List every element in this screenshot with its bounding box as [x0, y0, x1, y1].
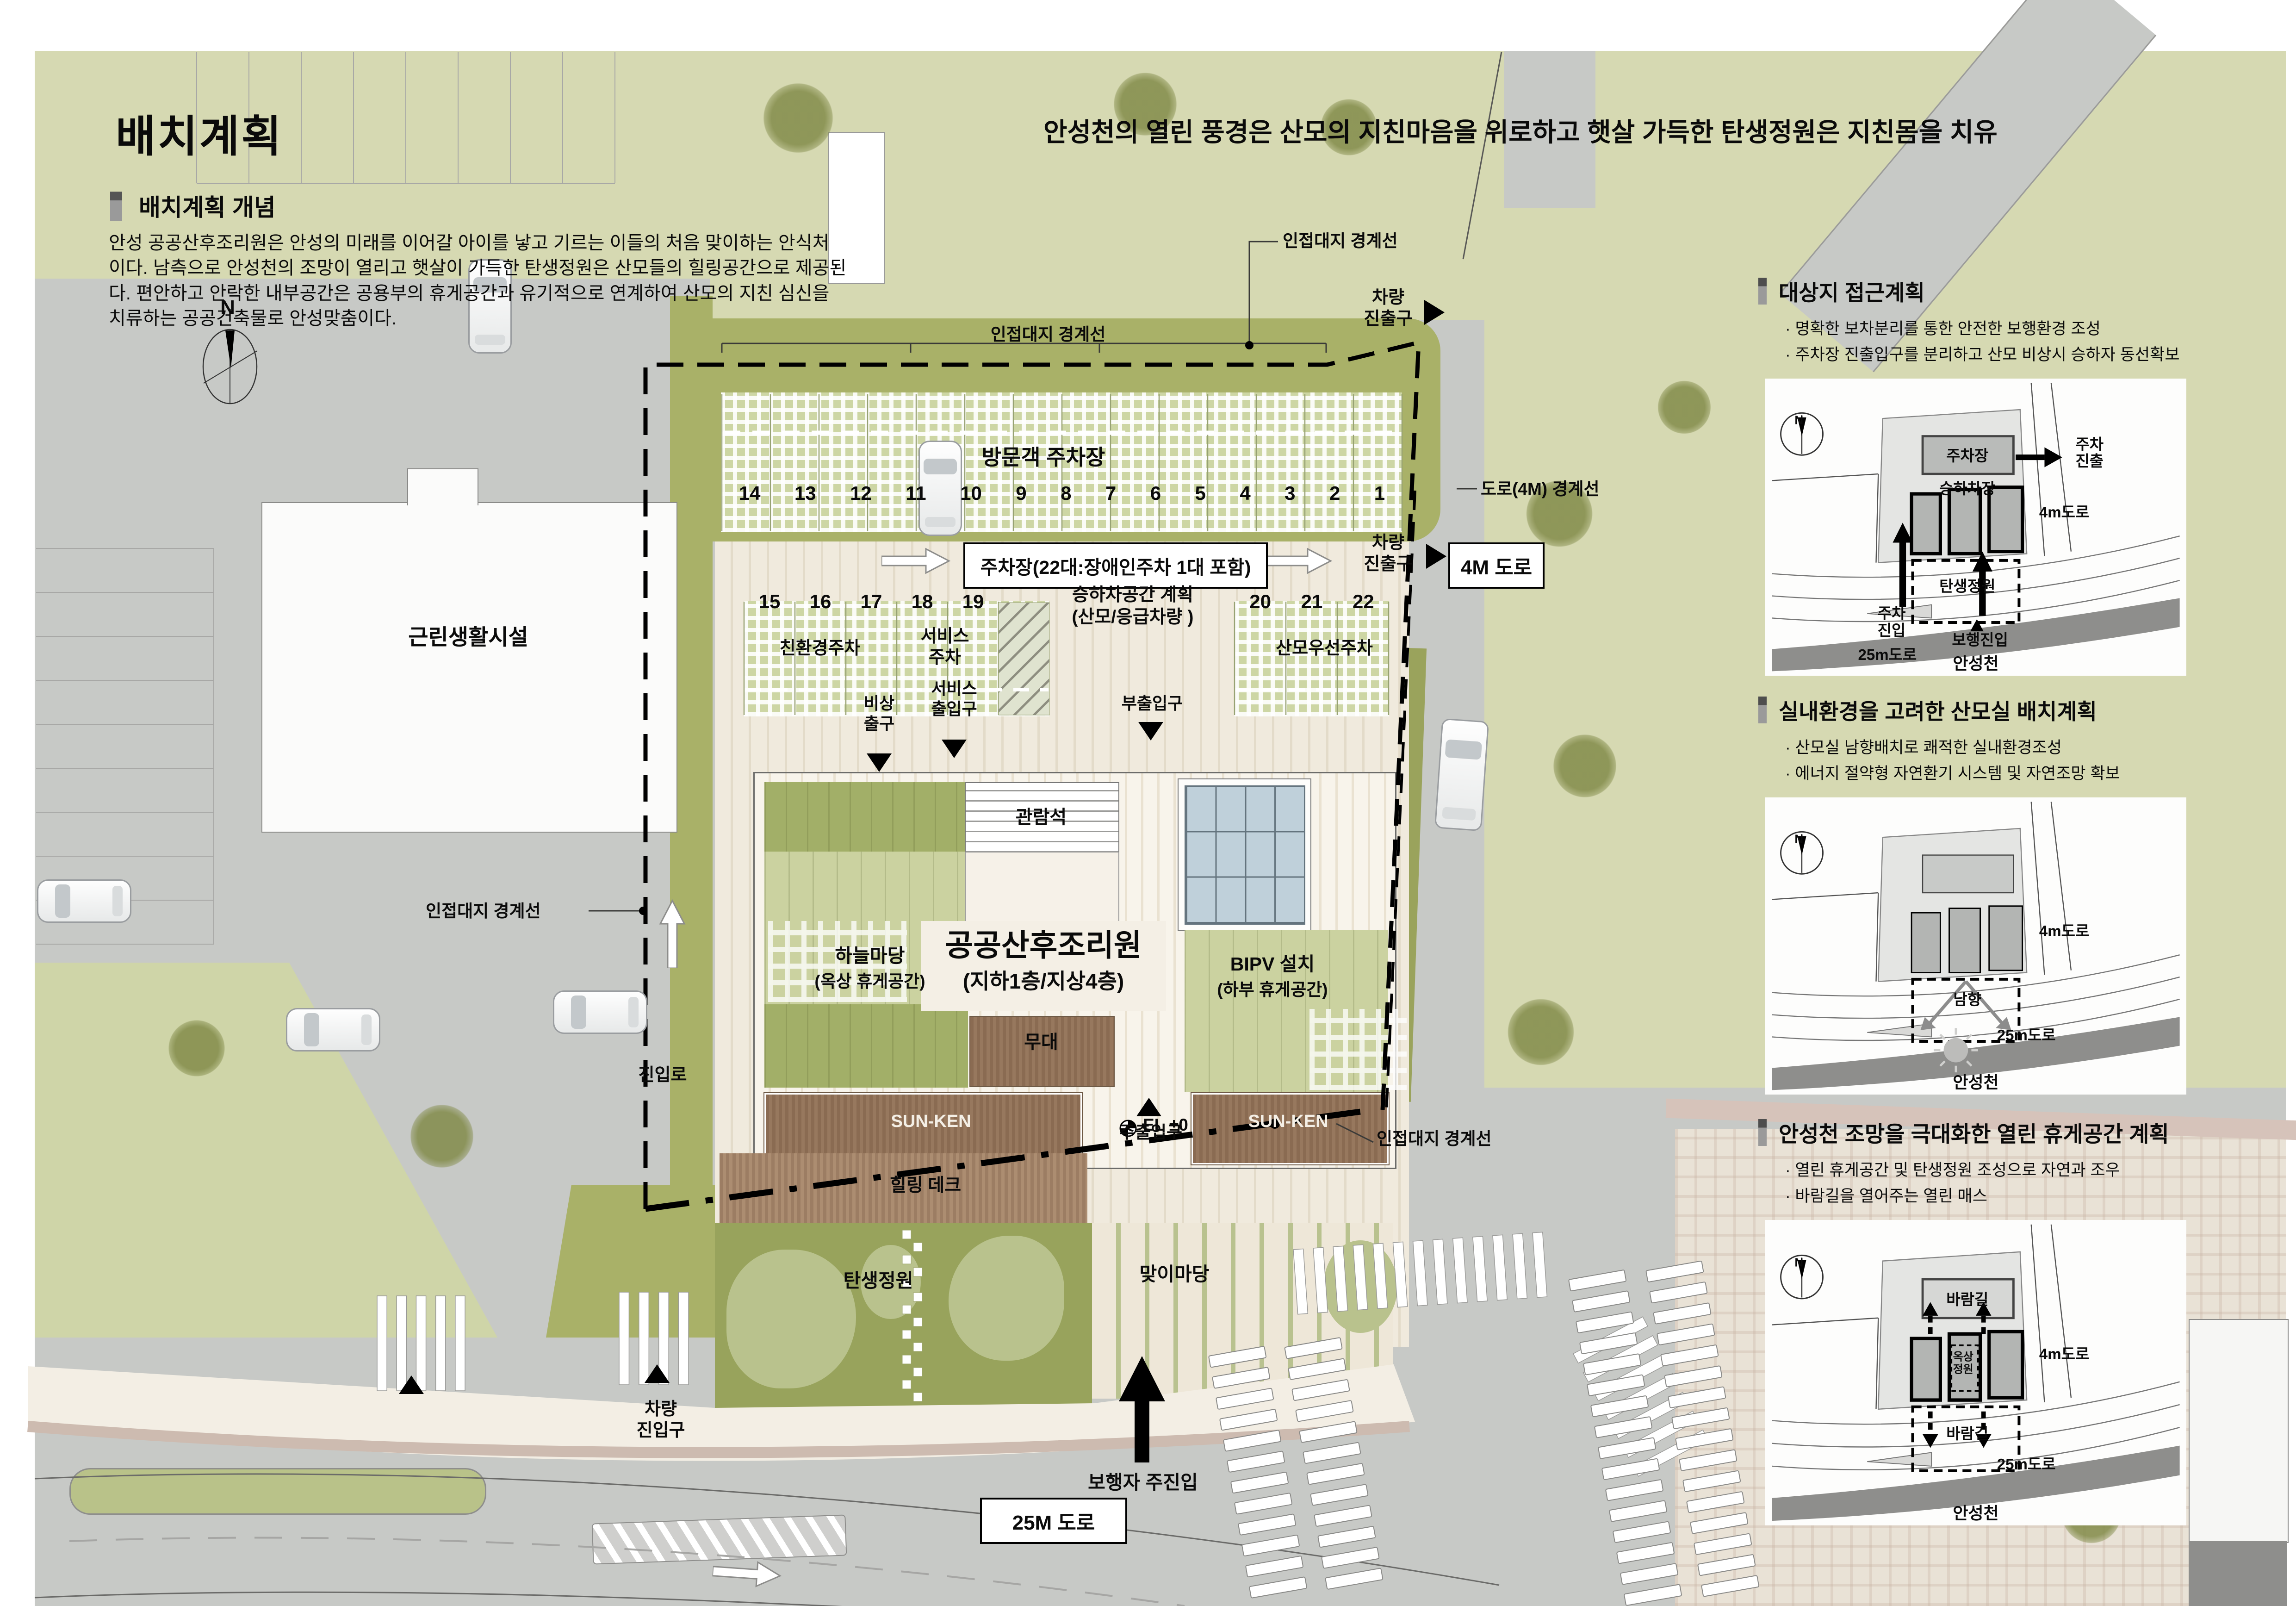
concept-marker-icon	[110, 192, 122, 221]
panel-bullet: · 산모실 남향배치로 쾌적한 실내환경조성	[1785, 734, 2062, 758]
mini-dropzone-label: 승하차장	[1939, 480, 1995, 497]
panel-title: 안성천 조망을 극대화한 열린 휴게공간 계획	[1779, 1116, 2169, 1148]
pedestrian-entry-label: 보행자 주진입	[1088, 1471, 1198, 1494]
panel-marker-icon	[1758, 1119, 1767, 1146]
mini-map	[1765, 797, 2186, 1095]
building-name-label: 공공산후조리원	[945, 927, 1142, 964]
concept-heading: 배치계획 개념	[139, 193, 276, 222]
boundary-label-left: 인접대지 경계선	[426, 901, 541, 921]
panel-bullet: · 명확한 보차분리를 통한 안전한 보행환경 조성	[1785, 316, 2101, 339]
mini-wind-top-label: 바람길	[1946, 1291, 1988, 1307]
boundary-label-top-right: 인접대지 경계선	[1283, 230, 1398, 251]
stall-number: 3	[1285, 482, 1295, 504]
stall-number: 10	[960, 482, 982, 504]
sub-entrance-arrow-icon	[1138, 722, 1163, 740]
stall-number: 22	[1353, 591, 1374, 613]
dropoff-plan-label: 승하차공간 계획 (산모/응급차량 )	[1072, 584, 1194, 628]
mini-wind-bottom-label: 바람길	[1946, 1425, 1988, 1442]
neighborhood-label: 근린생활시설	[408, 624, 528, 650]
panel-title: 대상지 접근계획	[1779, 275, 1925, 307]
sunken-left-label: SUN-KEN	[891, 1111, 971, 1132]
main-entrance-arrow-icon	[1136, 1098, 1161, 1116]
stall-number: 13	[794, 482, 816, 504]
panel-diagram: N 바람길 옥상 정원 4m도로 바람길 25m도로 안성천	[1765, 1220, 2186, 1525]
panel-bullet: · 열린 휴게공간 및 탄생정원 조성으로 자연과 조우	[1785, 1157, 2120, 1181]
bipv-label: BIPV 설치	[1230, 952, 1315, 976]
stall-number: 1	[1374, 482, 1385, 504]
direction-arrow-icon	[1263, 546, 1333, 576]
stall-number: 8	[1061, 482, 1071, 504]
stall-number: 15	[759, 591, 781, 613]
car-icon	[286, 1008, 380, 1052]
sub-entrance-label: 부출입구	[1122, 693, 1183, 714]
parking-note-label: 주차장(22대:장애인주차 1대 포함)	[980, 552, 1251, 579]
stall-number: 11	[906, 482, 926, 504]
panel-room-layout-plan: 실내환경을 고려한 산모실 배치계획 · 산모실 남향배치로 쾌적한 실내환경조…	[1758, 697, 2290, 1104]
access-road-label: 진입로	[639, 1064, 687, 1086]
bottom-margin	[0, 1606, 2296, 1624]
stall-number: 20	[1249, 591, 1271, 613]
mini-road4m-label: 4m도로	[2039, 504, 2089, 521]
stall-number: 19	[962, 591, 984, 613]
stall-numbers-row2: 1516171819	[744, 591, 999, 613]
stall-numbers-row1: 1413121110987654321	[722, 482, 1402, 504]
bipv-sub-label: (하부 휴게공간)	[1217, 979, 1328, 1000]
panel-marker-icon	[1758, 697, 1767, 723]
road-25m-box: 25M 도로	[980, 1498, 1127, 1544]
sky-yard-label: 하늘마당	[835, 944, 905, 967]
road-25m-label: 25M 도로	[1012, 1506, 1095, 1536]
parking-note-box: 주차장(22대:장애인주차 1대 포함)	[963, 542, 1268, 589]
panel-bullet: · 에너지 절약형 자연환기 시스템 및 자연조망 확보	[1785, 760, 2120, 784]
service-entrance-label: 서비스 출입구	[931, 678, 977, 719]
eco-parking-label: 친환경주차	[780, 638, 861, 659]
panel-bullet: · 주차장 진출입구를 분리하고 산모 비상시 승하자 동선확보	[1785, 342, 2180, 365]
stall-number: 18	[912, 591, 933, 613]
emergency-exit-arrow-icon	[867, 753, 892, 772]
stall-number: 7	[1105, 482, 1116, 504]
stall-number: 17	[861, 591, 882, 613]
mini-river-label: 안성천	[1953, 1504, 1998, 1523]
panel-diagram: N 4m도로 남향 25m도로 안성천	[1765, 797, 2186, 1095]
mini-parking-label: 주차장	[1946, 448, 1988, 464]
mini-river-label: 안성천	[1953, 655, 1998, 673]
mini-map	[1765, 1220, 2186, 1525]
stall-number: 12	[850, 482, 872, 504]
direction-arrow-icon	[881, 546, 951, 576]
concept-body: 안성 공공산후조리원은 안성의 미래를 이어갈 아이를 낳고 기르는 이들의 처…	[109, 230, 849, 331]
stall-number: 9	[1016, 482, 1026, 504]
visitor-parking-label: 방문객 주차장	[982, 444, 1105, 470]
mini-river-label: 안성천	[1953, 1074, 1998, 1092]
mother-parking-label: 산모우선주차	[1276, 638, 1373, 659]
stall-number: 16	[810, 591, 832, 613]
panel-bullet: · 바람길을 열어주는 열린 매스	[1785, 1183, 1987, 1207]
healing-deck-label: 힐링 데크	[890, 1175, 961, 1197]
grandstand-label: 관람석	[1016, 806, 1067, 829]
stall-number: 21	[1301, 591, 1323, 613]
mini-south-label: 남향	[1953, 991, 1981, 1008]
vehicle-entry-arrow-icon	[645, 1364, 670, 1383]
birth-garden-label: 탄생정원	[844, 1269, 913, 1292]
panel-diagram: N 주차장 주차 진출 승하차장 4m도로 탄생정원 주차 진입 보행진입 25…	[1765, 379, 2186, 676]
car-icon	[37, 879, 131, 923]
stage-label: 무대	[1024, 1031, 1058, 1054]
compass-label: N	[220, 295, 235, 320]
mini-road25m-label: 25m도로	[1997, 1027, 2056, 1043]
mini-parking-entry-label: 주차 진입	[1878, 605, 1906, 639]
panel-title: 실내환경을 고려한 산모실 배치계획	[1779, 694, 2097, 726]
stall-numbers-row3: 202122	[1235, 591, 1389, 613]
service-parking-label: 서비스 주차	[921, 626, 969, 669]
mini-compass-label: N	[1794, 833, 1803, 846]
boundary-label-bottom-right: 인접대지 경계선	[1377, 1128, 1492, 1149]
vehicle-exit-arrow-icon	[1426, 544, 1446, 569]
road-4m-box: 4M 도로	[1448, 542, 1545, 589]
van-icon	[1434, 718, 1489, 832]
building-floor-label: (지하1층/지상4층)	[963, 968, 1124, 994]
boundary-label-top: 인접대지 경계선	[991, 324, 1106, 345]
direction-arrow-icon	[712, 1556, 783, 1591]
mini-road4m-label: 4m도로	[2039, 1346, 2089, 1363]
stall-number: 2	[1329, 482, 1340, 504]
mini-parking-exit-label: 주차 진출	[2075, 436, 2104, 470]
stall-number: 4	[1240, 482, 1250, 504]
stall-number: 6	[1150, 482, 1161, 504]
direction-arrow-icon	[658, 899, 687, 968]
welcome-yard-label: 맞이마당	[1140, 1263, 1210, 1286]
stall-number: 14	[739, 482, 761, 504]
mini-compass-label: N	[1794, 1256, 1803, 1269]
service-entrance-arrow-icon	[942, 740, 967, 758]
car-icon	[553, 990, 647, 1034]
mini-road25m-label: 25m도로	[1997, 1456, 2056, 1473]
vehicle-entry-label: 차량 진입구	[637, 1399, 685, 1442]
stall-number: 5	[1195, 482, 1206, 504]
site-plan-board: 배치계획 안성천의 열린 풍경은 산모의 지친마음을 위로하고 햇살 가득한 탄…	[0, 0, 2296, 1624]
mini-road4m-label: 4m도로	[2039, 923, 2089, 940]
page-headline: 안성천의 열린 풍경은 산모의 지친마음을 위로하고 햇살 가득한 탄생정원은 …	[1043, 117, 1998, 148]
panel-access-plan: 대상지 접근계획 · 명확한 보차분리를 통한 안전한 보행환경 조성 · 주차…	[1758, 278, 2290, 685]
panel-open-rest-plan: 안성천 조망을 극대화한 열린 휴게공간 계획 · 열린 휴게공간 및 탄생정원…	[1758, 1119, 2290, 1536]
mini-roof-garden-label: 옥상 정원	[1953, 1351, 1973, 1376]
vehicle-exit-label-2: 차량 진출구	[1364, 532, 1413, 575]
emergency-exit-label: 비상 출구	[864, 693, 894, 734]
page-title: 배치계획	[116, 110, 283, 163]
sky-yard-sub-label: (옥상 휴게공간)	[814, 971, 925, 992]
vehicle-exit-label-1: 차량 진출구	[1364, 287, 1413, 330]
crosswalk-arrow-icon	[399, 1375, 424, 1394]
road-4m-label: 4M 도로	[1461, 551, 1532, 580]
sunken-right-label: SUN-KEN	[1248, 1111, 1328, 1132]
mini-ped-entry-label: 보행진입	[1952, 632, 2008, 648]
vehicle-exit-arrow-icon	[1424, 300, 1445, 325]
road-4m-boundary-label: 도로(4M) 경계선	[1481, 479, 1600, 499]
el-label: EL ±0	[1143, 1114, 1188, 1135]
mini-compass-label: N	[1794, 414, 1803, 427]
mini-road25m-label: 25m도로	[1858, 647, 1917, 663]
panel-marker-icon	[1758, 278, 1767, 305]
mini-garden-label: 탄생정원	[1939, 578, 1995, 595]
